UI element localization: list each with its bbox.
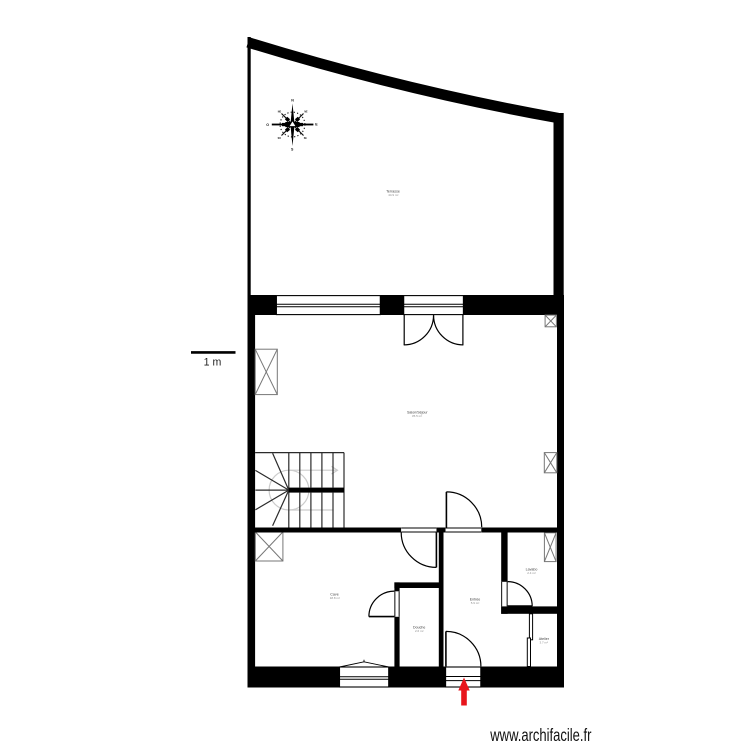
svg-text:18.8 m²: 18.8 m² xyxy=(330,596,340,600)
svg-text:44.9 m²: 44.9 m² xyxy=(388,193,398,197)
svg-text:2.6 m²: 2.6 m² xyxy=(415,629,424,633)
svg-text:NO: NO xyxy=(278,112,282,114)
svg-text:3.7 m²: 3.7 m² xyxy=(540,641,549,645)
svg-text:www.archifacile.fr: www.archifacile.fr xyxy=(489,726,591,745)
svg-text:1 m: 1 m xyxy=(204,356,222,368)
svg-text:2.4 m²: 2.4 m² xyxy=(527,571,536,575)
svg-text:SO: SO xyxy=(278,138,282,140)
svg-text:NE: NE xyxy=(304,111,308,113)
svg-text:O: O xyxy=(266,123,269,127)
svg-text:35.5 m²: 35.5 m² xyxy=(412,414,422,418)
svg-text:N: N xyxy=(291,99,294,103)
svg-text:5.9 m²: 5.9 m² xyxy=(471,601,480,605)
svg-text:SE: SE xyxy=(304,138,308,140)
